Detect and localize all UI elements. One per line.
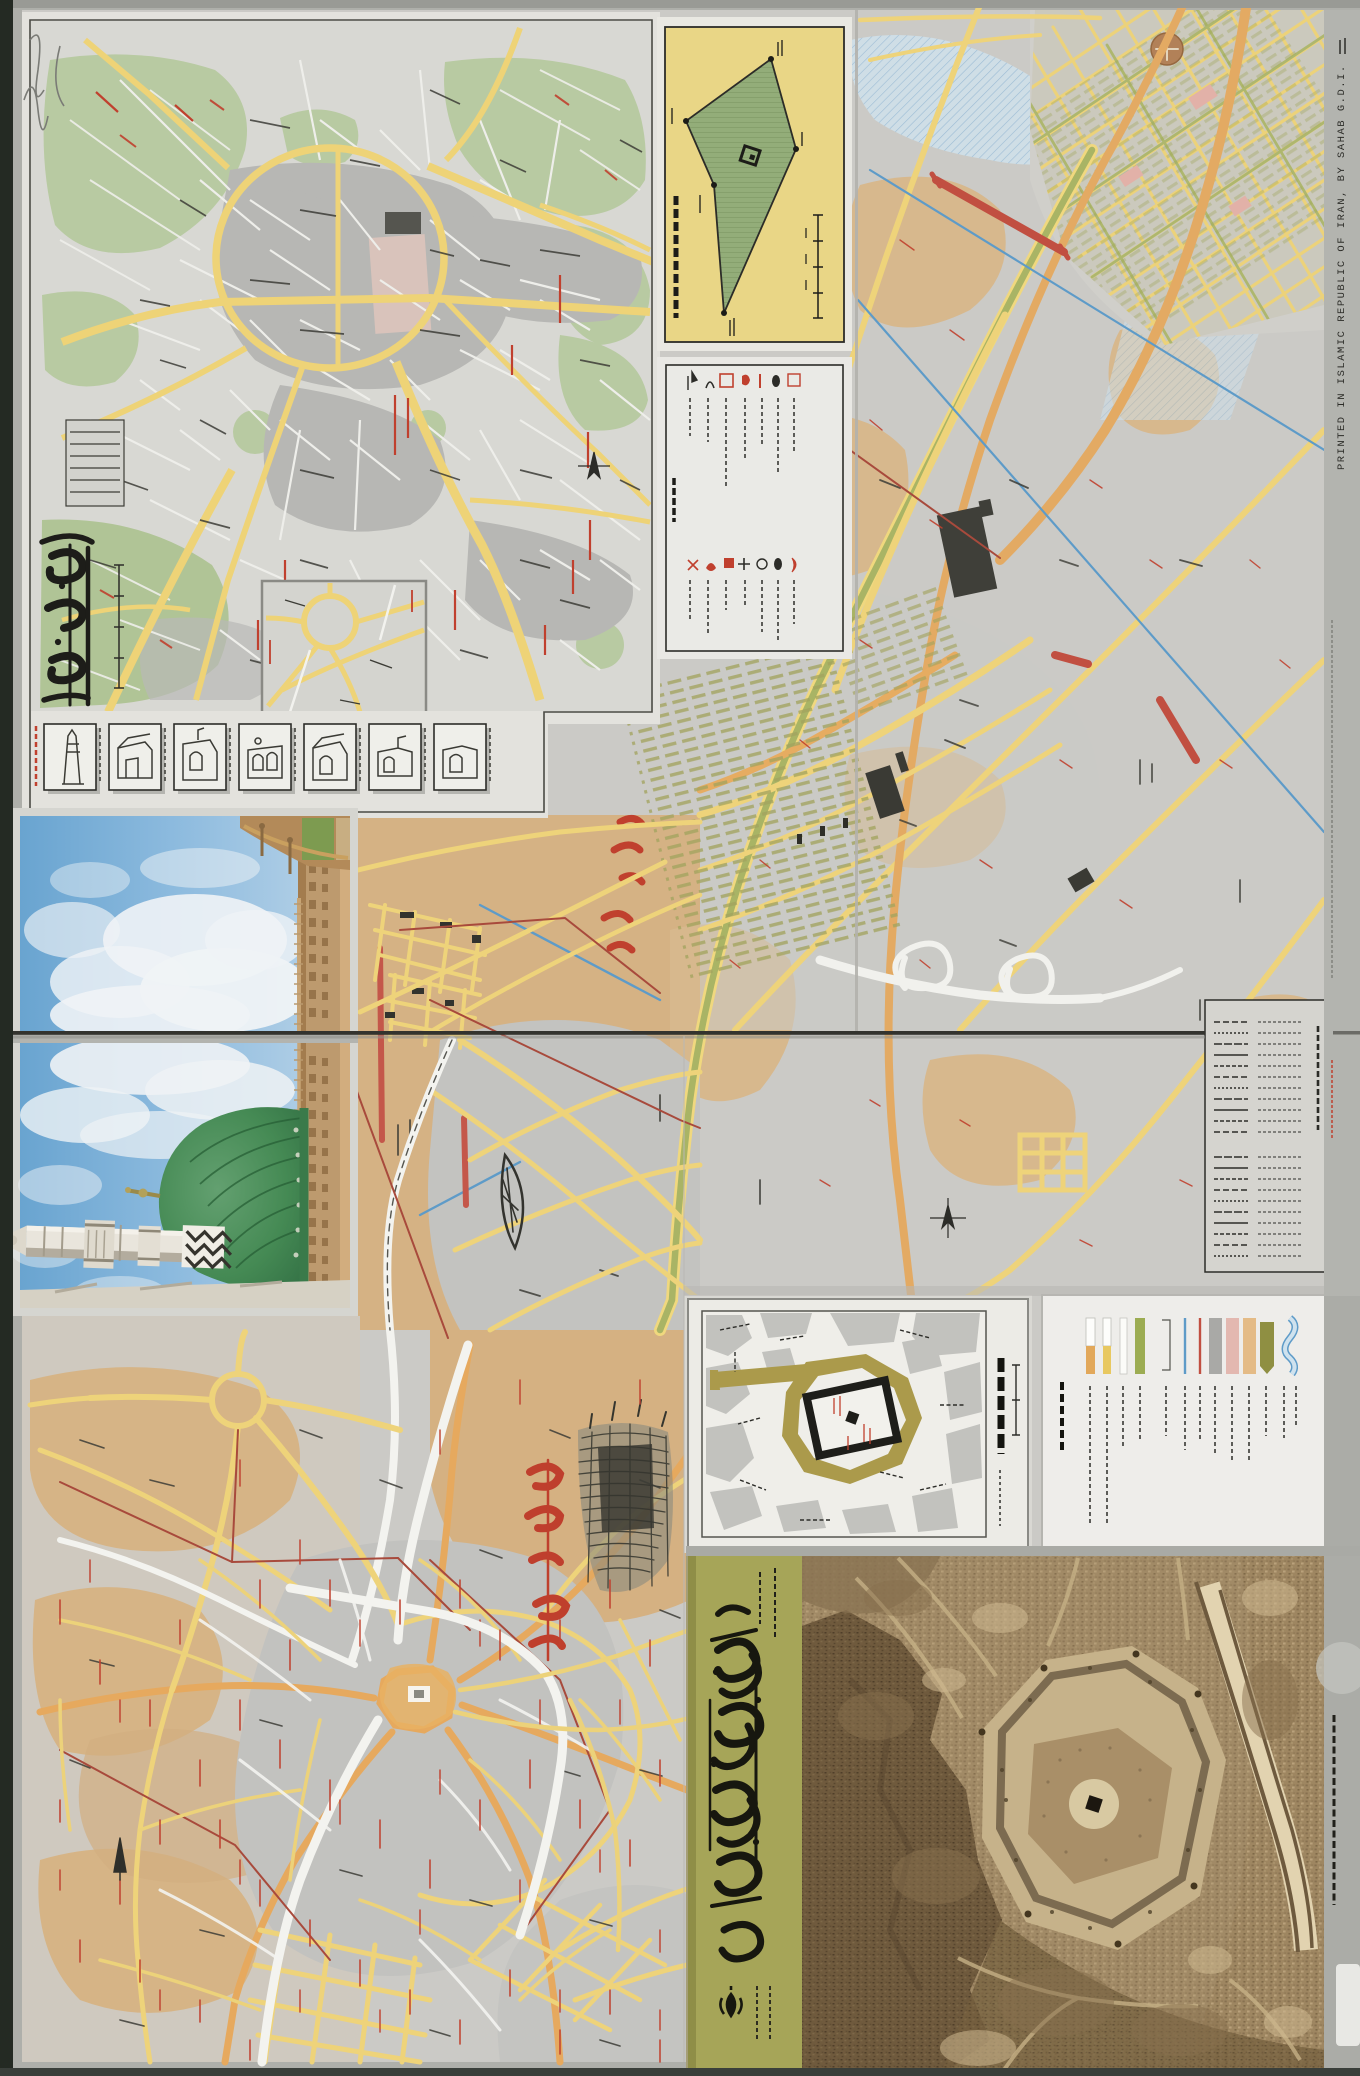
svg-text:PRINTED IN ISLAMIC REPUBLIC OF: PRINTED IN ISLAMIC REPUBLIC OF IRAN, BY … bbox=[1336, 64, 1348, 470]
